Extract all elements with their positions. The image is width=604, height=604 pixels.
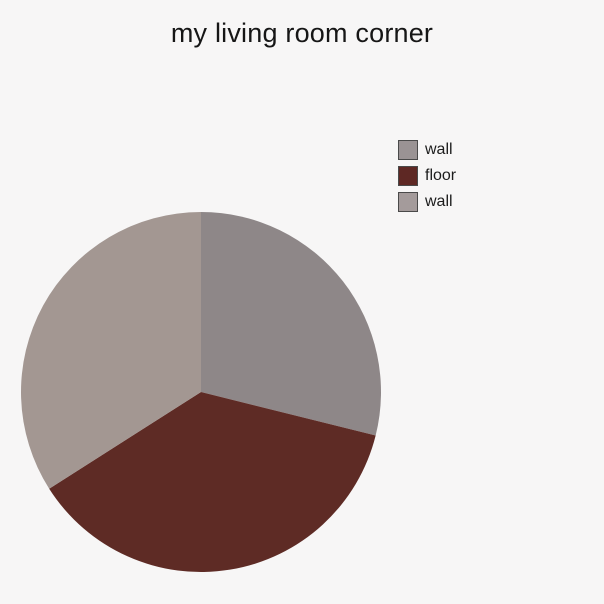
meme-pie-chart-page: my living room corner wall floor wall [0,0,604,604]
pie-chart [0,0,604,604]
